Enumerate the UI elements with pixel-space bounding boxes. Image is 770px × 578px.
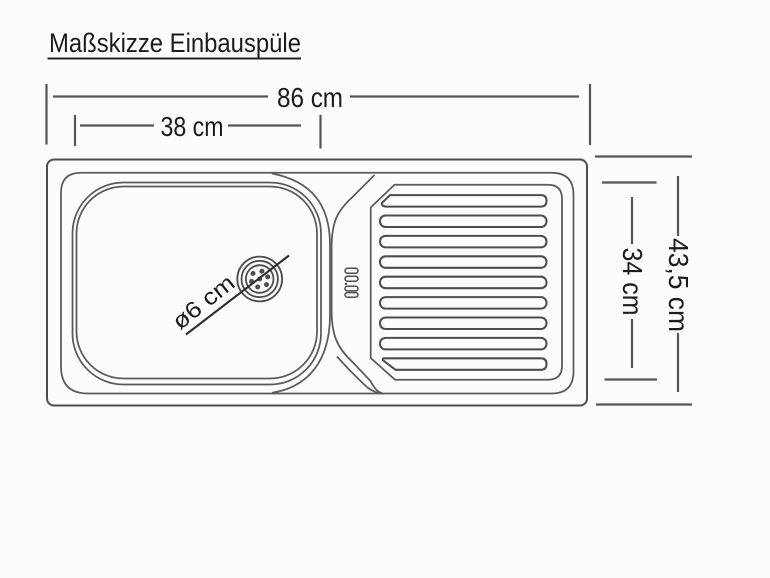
svg-text:43,5 cm: 43,5 cm <box>663 238 694 332</box>
svg-text:Maßskizze Einbauspüle: Maßskizze Einbauspüle <box>49 28 301 58</box>
svg-text:86 cm: 86 cm <box>277 82 343 113</box>
svg-text:38 cm: 38 cm <box>161 111 224 142</box>
svg-text:34 cm: 34 cm <box>617 248 648 316</box>
